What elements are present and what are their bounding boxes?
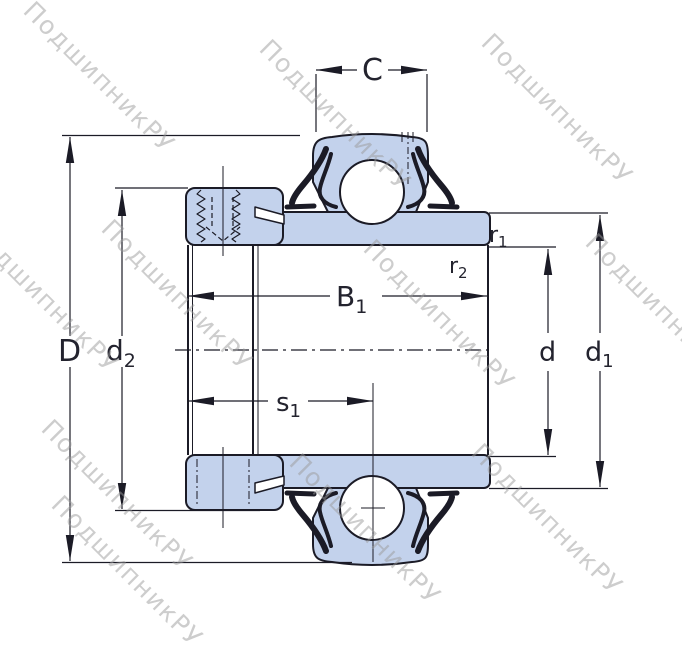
watermark-text: ПодшипникРУ [466,438,629,601]
watermark-text: ПодшипникРУ [358,234,521,397]
arrow-s1-left [188,397,214,405]
arrow-d1-bottom [596,461,604,487]
technical-drawing-canvas: C D d2 B1 s1 r1 r2 d d1 ПодшипникРУ Подш… [0,0,682,647]
watermark-text: ПодшипникРУ [476,28,639,191]
arrow-d-top [544,249,552,275]
label-r2: r2 [449,254,468,282]
arrow-d-bottom [544,429,552,455]
label-d1: d1 [585,337,614,372]
arrow-C-left [316,66,342,74]
arrow-s1-right [347,397,373,405]
label-s1: s1 [276,388,301,422]
label-B1: B1 [336,280,367,318]
label-r1: r1 [489,223,508,251]
arrow-B1-right [461,292,487,300]
label-C: C [362,53,383,88]
bearing-cross-section-drawing: C D d2 B1 s1 r1 r2 d d1 ПодшипникРУ Подш… [0,0,682,647]
watermark-text: ПодшипникРУ [18,0,181,159]
arrow-D-top [66,137,74,163]
arrow-d2-top [118,190,126,216]
label-d: d [539,337,556,368]
arrow-D-bottom [66,535,74,561]
arrow-C-right [401,66,427,74]
